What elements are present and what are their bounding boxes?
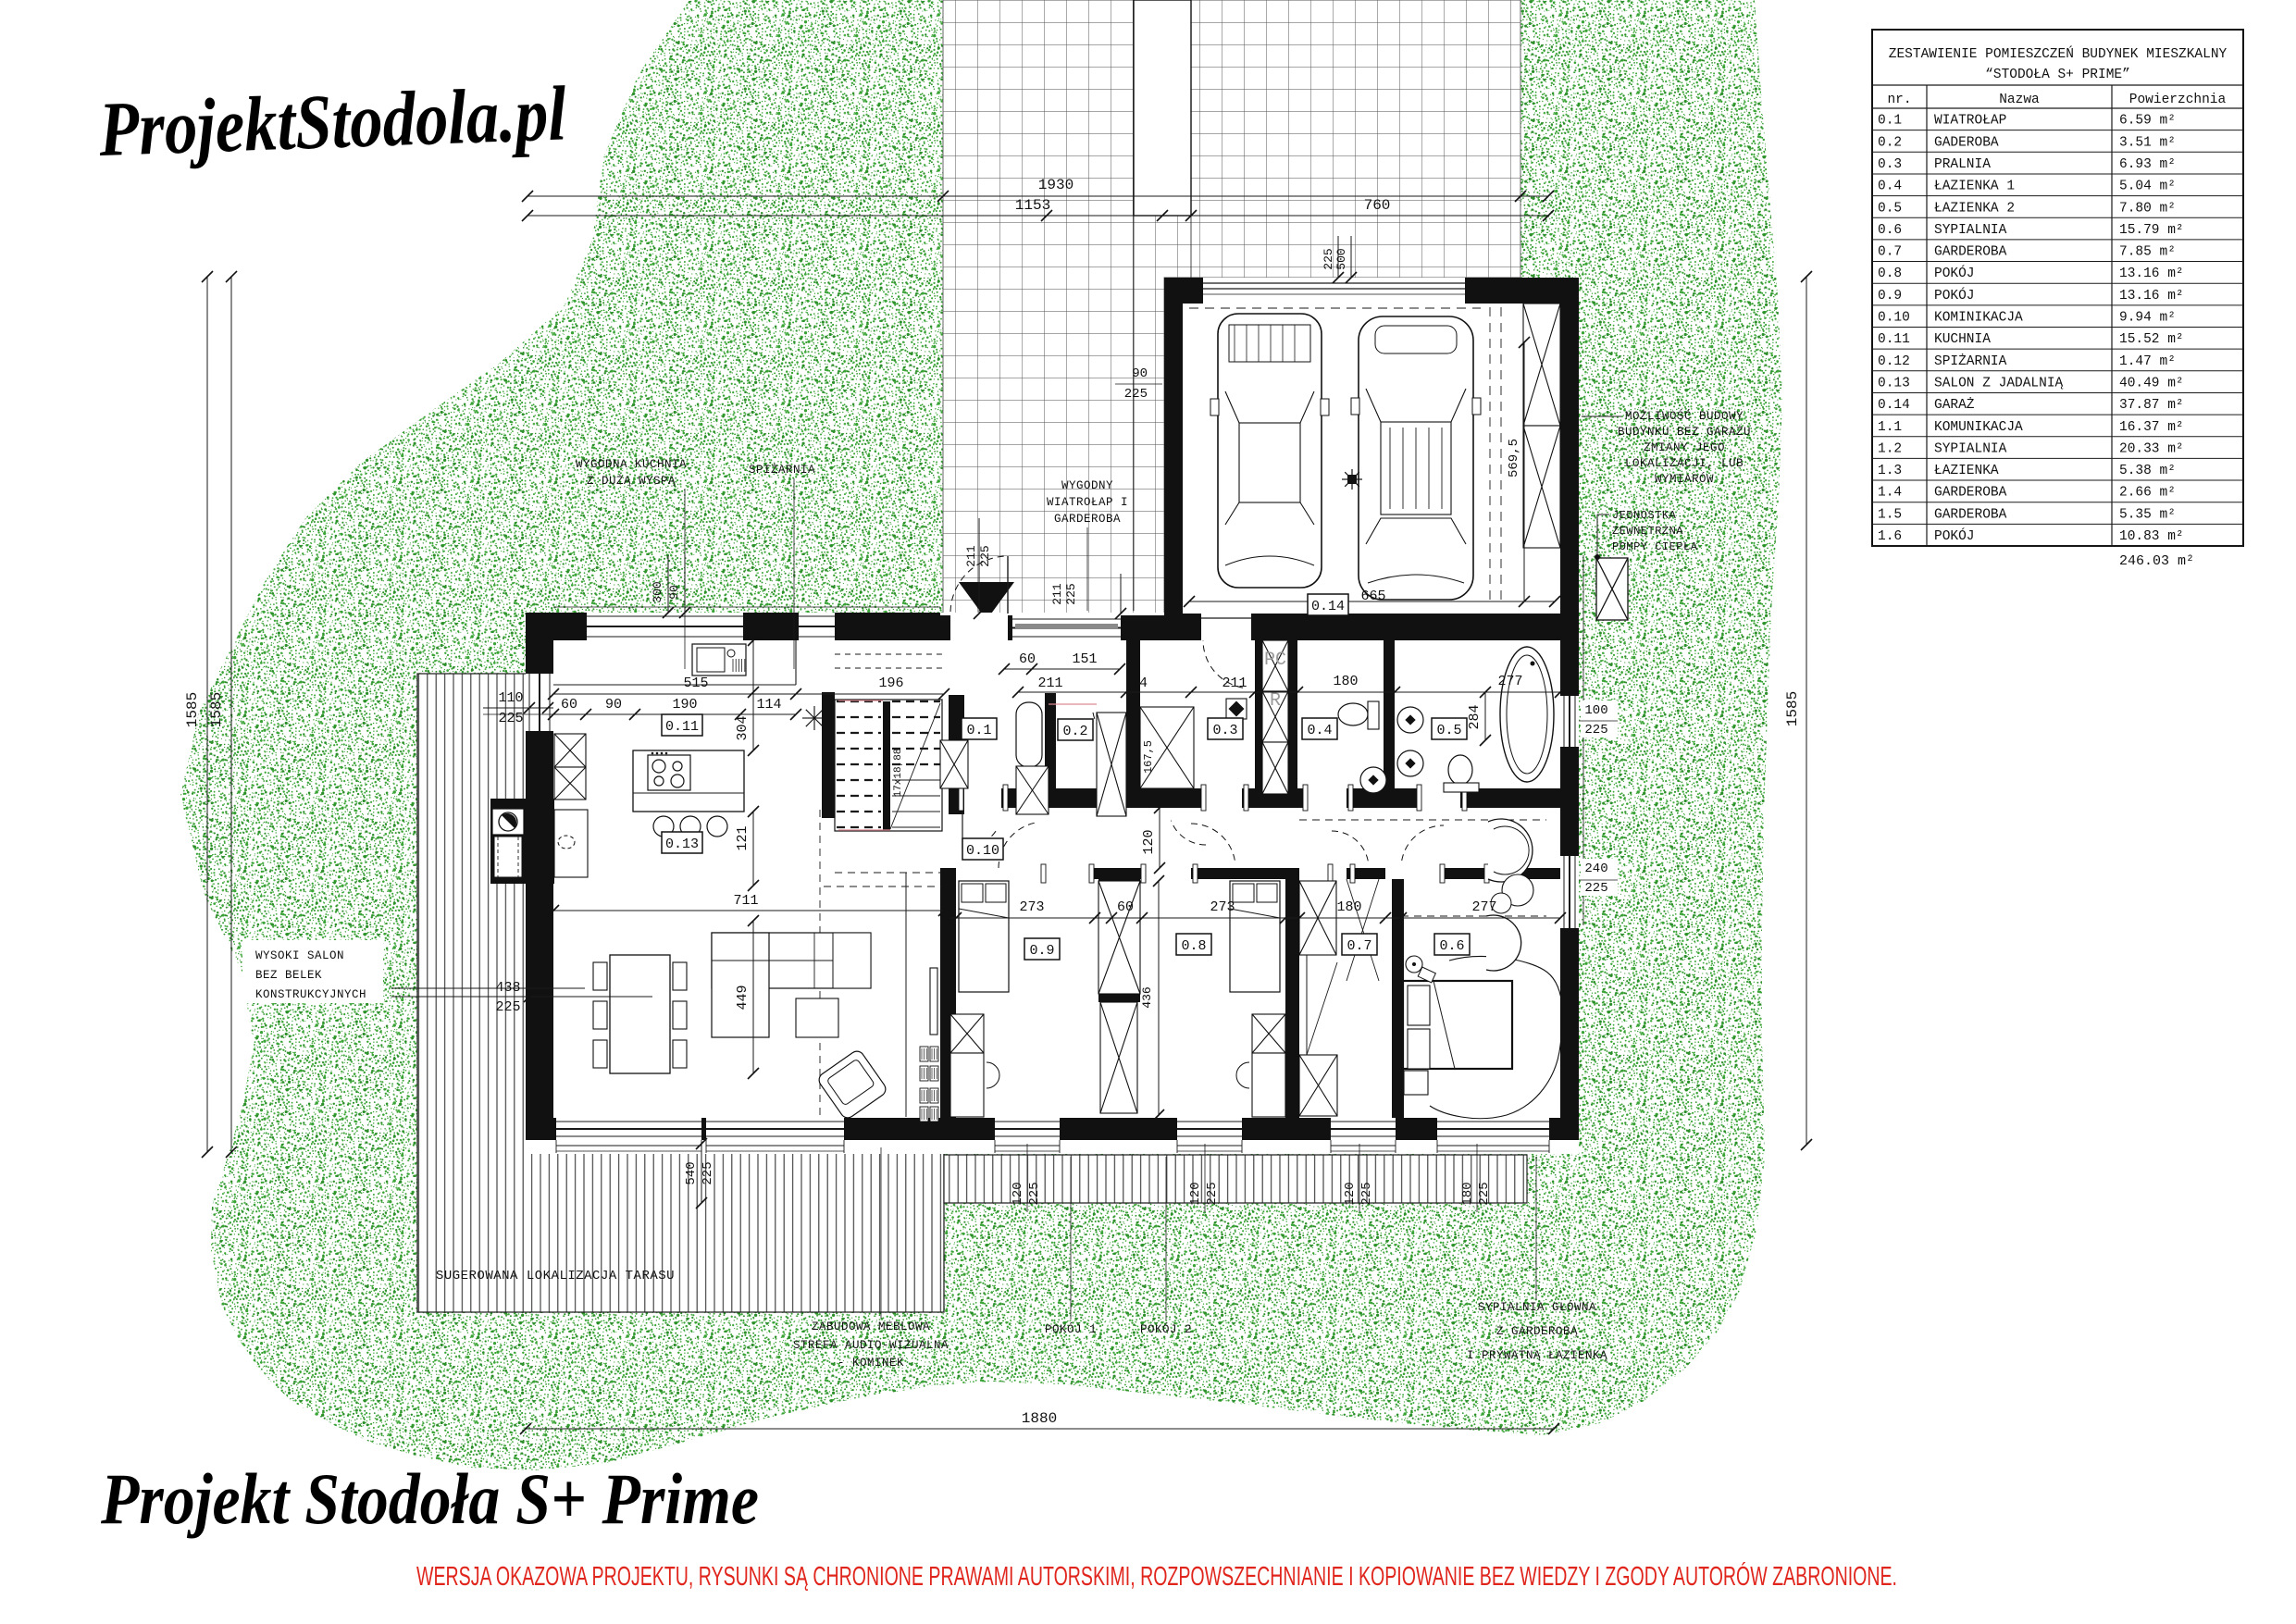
svg-text:277: 277	[1471, 899, 1496, 915]
svg-text:1930: 1930	[1038, 177, 1074, 193]
svg-text:Projekt Stodoła S+ Prime: Projekt Stodoła S+ Prime	[100, 1458, 759, 1539]
svg-text:GARDEROBA: GARDEROBA	[1054, 513, 1121, 526]
svg-text:POMPY CIEPŁA: POMPY CIEPŁA	[1612, 540, 1698, 553]
svg-text:1.47 m²: 1.47 m²	[2119, 354, 2176, 369]
svg-text:284: 284	[1467, 704, 1483, 729]
svg-text:225: 225	[495, 999, 520, 1015]
svg-text:225: 225	[978, 545, 992, 566]
svg-text:WYSOKI SALON: WYSOKI SALON	[255, 949, 344, 962]
svg-text:240: 240	[1584, 862, 1607, 876]
svg-text:0.11: 0.11	[665, 719, 699, 735]
svg-text:225: 225	[1322, 248, 1335, 269]
svg-text:436: 436	[1140, 986, 1154, 1008]
svg-text:ŁAZIENKA 2: ŁAZIENKA 2	[1934, 201, 2015, 216]
svg-text:ZABUDOWA MEBLOWA: ZABUDOWA MEBLOWA	[812, 1320, 930, 1333]
svg-text:0.14: 0.14	[1878, 398, 1910, 413]
svg-text:JEDNOSTKA: JEDNOSTKA	[1612, 509, 1677, 522]
svg-text:0.1: 0.1	[1878, 114, 1902, 129]
svg-text:0.1: 0.1	[966, 723, 991, 738]
svg-text:Z GARDEROBĄ: Z GARDEROBĄ	[1496, 1325, 1578, 1338]
svg-text:13.16 m²: 13.16 m²	[2119, 289, 2184, 304]
svg-text:438: 438	[495, 980, 520, 996]
svg-text:60: 60	[1117, 899, 1134, 915]
svg-text:540: 540	[684, 1161, 699, 1184]
svg-text:ZESTAWIENIE POMIESZCZEŃ BUDYNE: ZESTAWIENIE POMIESZCZEŃ BUDYNEK MIESZKAL…	[1889, 45, 2228, 62]
svg-text:WYGODNA KUCHNIA: WYGODNA KUCHNIA	[576, 458, 687, 471]
svg-text:1.3: 1.3	[1878, 464, 1902, 478]
svg-text:37.87 m²: 37.87 m²	[2119, 398, 2184, 413]
svg-text:I PRYWATNĄ ŁAZIENKĄ: I PRYWATNĄ ŁAZIENKĄ	[1467, 1349, 1607, 1362]
svg-text:MOŻLIWOŚĆ BUDOWY: MOŻLIWOŚĆ BUDOWY	[1625, 409, 1744, 423]
svg-text:665: 665	[1360, 589, 1385, 604]
svg-text:“STODOŁA S+ PRIME”: “STODOŁA S+ PRIME”	[1985, 68, 2130, 82]
svg-text:0.7: 0.7	[1347, 938, 1371, 954]
svg-text:74: 74	[1131, 676, 1148, 691]
svg-text:151: 151	[1072, 651, 1097, 667]
svg-text:0.8: 0.8	[1181, 938, 1206, 954]
svg-text:POKÓJ: POKÓJ	[1934, 287, 1975, 304]
svg-text:POKÓJ 1: POKÓJ 1	[1045, 1322, 1097, 1336]
svg-text:STREFA AUDIO-WIZUALNA: STREFA AUDIO-WIZUALNA	[793, 1339, 949, 1352]
svg-text:0.10: 0.10	[966, 843, 999, 859]
svg-text:196: 196	[878, 676, 903, 691]
svg-text:- KOMINEK: - KOMINEK	[838, 1357, 904, 1370]
svg-text:6.59 m²: 6.59 m²	[2119, 114, 2176, 129]
svg-text:100: 100	[1584, 703, 1607, 718]
svg-text:ŁAZIENKA: ŁAZIENKA	[1934, 464, 1999, 478]
svg-text:KUCHNIA: KUCHNIA	[1934, 332, 1991, 347]
svg-text:225: 225	[1124, 387, 1148, 402]
svg-text:0.14: 0.14	[1311, 599, 1345, 614]
svg-text:0.12: 0.12	[1878, 354, 1910, 369]
svg-text:WYMIARÓW: WYMIARÓW	[1655, 472, 1714, 486]
svg-text:0.8: 0.8	[1878, 267, 1902, 281]
svg-text:110: 110	[498, 690, 523, 706]
svg-text:GARDEROBA: GARDEROBA	[1934, 245, 2007, 260]
svg-text:90: 90	[1132, 366, 1148, 381]
svg-text:ŁAZIENKA 1: ŁAZIENKA 1	[1934, 180, 2015, 194]
svg-text:120: 120	[1343, 1182, 1358, 1205]
svg-text:121: 121	[735, 825, 751, 850]
svg-text:167,5: 167,5	[1142, 740, 1155, 774]
svg-text:WERSJA OKAZOWA PROJEKTU, RYSUN: WERSJA OKAZOWA PROJEKTU, RYSUNKI SĄ CHRO…	[416, 1561, 1897, 1592]
svg-text:0.10: 0.10	[1878, 311, 1910, 326]
svg-text:225: 225	[1359, 1182, 1374, 1205]
svg-text:1585: 1585	[184, 692, 201, 727]
svg-text:711: 711	[733, 893, 758, 909]
svg-text:114: 114	[756, 697, 781, 713]
svg-text:7.80 m²: 7.80 m²	[2119, 201, 2176, 216]
svg-text:POKÓJ: POKÓJ	[1934, 527, 1975, 544]
svg-text:BEZ BELEK: BEZ BELEK	[255, 969, 322, 982]
svg-text:3.51 m²: 3.51 m²	[2119, 135, 2176, 150]
svg-text:1880: 1880	[1022, 1410, 1057, 1427]
svg-text:180: 180	[1333, 674, 1358, 689]
svg-text:0.4: 0.4	[1878, 180, 1902, 194]
svg-text:17x18,88: 17x18,88	[893, 749, 904, 798]
svg-text:10.83 m²: 10.83 m²	[2119, 529, 2184, 544]
svg-text:GADEROBA: GADEROBA	[1934, 135, 1999, 150]
svg-text:40.49 m²: 40.49 m²	[2119, 376, 2184, 391]
svg-text:1585: 1585	[1784, 691, 1801, 726]
svg-text:0.3: 0.3	[1212, 723, 1237, 738]
svg-text:60: 60	[1019, 651, 1036, 667]
svg-text:Z DUŻĄ WYSPĄ: Z DUŻĄ WYSPĄ	[587, 474, 676, 488]
svg-text:7.85 m²: 7.85 m²	[2119, 245, 2176, 260]
svg-text:1.1: 1.1	[1878, 420, 1902, 435]
svg-text:1.6: 1.6	[1878, 529, 1902, 544]
svg-text:KOMUNIKACJA: KOMUNIKACJA	[1934, 420, 2023, 435]
svg-text:WIATROŁAP: WIATROŁAP	[1934, 114, 2006, 129]
svg-text:1.5: 1.5	[1878, 507, 1902, 522]
svg-text:SYPIALNIA: SYPIALNIA	[1934, 441, 2007, 456]
svg-text:ProjektStodola.pl: ProjektStodola.pl	[97, 70, 568, 173]
svg-text:5.38 m²: 5.38 m²	[2119, 464, 2176, 478]
svg-text:225: 225	[1584, 723, 1607, 738]
svg-text:SYPIALNIA: SYPIALNIA	[1934, 223, 2007, 238]
svg-text:Powierzchnia: Powierzchnia	[2129, 93, 2227, 107]
svg-text:60: 60	[561, 697, 577, 713]
svg-text:225: 225	[1205, 1182, 1220, 1205]
svg-text:0.6: 0.6	[1439, 938, 1464, 954]
svg-text:225: 225	[498, 711, 523, 726]
svg-text:225: 225	[1064, 583, 1078, 604]
svg-text:0.11: 0.11	[1878, 332, 1910, 347]
svg-text:500: 500	[1334, 248, 1348, 269]
svg-text:211: 211	[1037, 676, 1062, 691]
svg-text:BUDYNKU BEZ GARAŻU: BUDYNKU BEZ GARAŻU	[1618, 425, 1751, 439]
svg-text:1.2: 1.2	[1878, 441, 1902, 456]
svg-text:120: 120	[1141, 829, 1157, 854]
svg-text:225: 225	[1477, 1182, 1492, 1205]
svg-text:273: 273	[1019, 899, 1044, 915]
svg-text:WIATROŁAP I: WIATROŁAP I	[1047, 496, 1128, 509]
svg-text:KOMINIKACJA: KOMINIKACJA	[1934, 311, 2023, 326]
svg-text:0.6: 0.6	[1878, 223, 1902, 238]
svg-text:0.4: 0.4	[1307, 723, 1332, 738]
svg-text:nr.: nr.	[1887, 93, 1911, 107]
svg-text:SALON Z JADALNIĄ: SALON Z JADALNIĄ	[1934, 376, 2064, 391]
svg-text:SYPIALNIA GŁÓWNA: SYPIALNIA GŁÓWNA	[1478, 1300, 1596, 1314]
svg-text:PRALNIA: PRALNIA	[1934, 157, 1991, 172]
svg-text:GARAŻ: GARAŻ	[1934, 396, 1975, 413]
svg-text:SUGEROWANA LOKALIZACJA TARASU: SUGEROWANA LOKALIZACJA TARASU	[436, 1269, 675, 1283]
svg-text:1153: 1153	[1015, 197, 1050, 214]
svg-text:190: 190	[672, 697, 697, 713]
svg-text:515: 515	[683, 676, 708, 691]
svg-text:277: 277	[1497, 674, 1522, 689]
svg-text:16.37 m²: 16.37 m²	[2119, 420, 2184, 435]
svg-text:569,5: 569,5	[1507, 439, 1521, 477]
svg-text:120: 120	[1011, 1182, 1025, 1205]
svg-text:1585: 1585	[208, 692, 225, 727]
svg-text:5.35 m²: 5.35 m²	[2119, 507, 2176, 522]
svg-text:90: 90	[605, 697, 622, 713]
svg-text:9.94 m²: 9.94 m²	[2119, 311, 2176, 326]
svg-text:246.03 m²: 246.03 m²	[2119, 553, 2194, 569]
svg-text:0.2: 0.2	[1878, 135, 1902, 150]
svg-text:180: 180	[1336, 899, 1361, 915]
svg-text:180: 180	[1460, 1182, 1475, 1205]
svg-text:225: 225	[1027, 1182, 1042, 1205]
svg-text:211: 211	[1050, 583, 1064, 605]
svg-text:KONSTRUKCYJNYCH: KONSTRUKCYJNYCH	[255, 988, 366, 1001]
svg-text:0.9: 0.9	[1029, 943, 1054, 959]
svg-text:0.3: 0.3	[1878, 157, 1902, 172]
svg-text:120: 120	[1188, 1182, 1203, 1205]
svg-text:Nazwa: Nazwa	[1999, 93, 2040, 107]
svg-text:0.9: 0.9	[1878, 289, 1902, 304]
svg-text:760: 760	[1364, 197, 1391, 214]
svg-text:0.5: 0.5	[1436, 723, 1461, 738]
svg-text:SPIŻARNIA: SPIŻARNIA	[1934, 353, 2007, 369]
svg-text:225: 225	[701, 1161, 715, 1184]
svg-text:SPIŻARNIA: SPIŻARNIA	[749, 463, 815, 477]
svg-text:2.66 m²: 2.66 m²	[2119, 486, 2176, 501]
svg-text:211: 211	[964, 545, 978, 567]
svg-text:20.33 m²: 20.33 m²	[2119, 441, 2184, 456]
svg-text:0.2: 0.2	[1062, 724, 1087, 739]
svg-text:0.5: 0.5	[1878, 201, 1902, 216]
svg-text:225: 225	[1584, 881, 1607, 896]
svg-text:15.79 m²: 15.79 m²	[2119, 223, 2184, 238]
svg-text:ZMIANY JEGO: ZMIANY JEGO	[1644, 441, 1725, 454]
svg-text:POKÓJ: POKÓJ	[1934, 265, 1975, 281]
svg-text:GARDEROBA: GARDEROBA	[1934, 507, 2007, 522]
svg-text:6.93 m²: 6.93 m²	[2119, 157, 2176, 172]
svg-text:15.52 m²: 15.52 m²	[2119, 332, 2184, 347]
svg-text:0.13: 0.13	[665, 837, 699, 852]
svg-text:1.4: 1.4	[1878, 486, 1902, 501]
svg-text:273: 273	[1210, 899, 1235, 915]
svg-text:449: 449	[735, 985, 751, 1010]
svg-text:0.13: 0.13	[1878, 376, 1910, 391]
svg-text:90: 90	[667, 585, 681, 600]
svg-text:LOKALIZACJI, LUB: LOKALIZACJI, LUB	[1625, 457, 1744, 470]
svg-text:PC: PC	[1264, 650, 1286, 671]
svg-text:WYGODNY: WYGODNY	[1061, 479, 1113, 492]
svg-text:ZEWNĘTRZNA: ZEWNĘTRZNA	[1612, 525, 1683, 538]
svg-text:13.16 m²: 13.16 m²	[2119, 267, 2184, 281]
svg-text:5.04 m²: 5.04 m²	[2119, 180, 2176, 194]
svg-text:GARDEROBA: GARDEROBA	[1934, 486, 2007, 501]
svg-text:211: 211	[1222, 676, 1247, 691]
svg-text:R: R	[1270, 690, 1281, 712]
svg-text:300: 300	[651, 581, 664, 602]
svg-text:0.7: 0.7	[1878, 245, 1902, 260]
svg-text:304: 304	[735, 715, 751, 740]
svg-text:POKÓJ 2: POKÓJ 2	[1140, 1322, 1192, 1336]
